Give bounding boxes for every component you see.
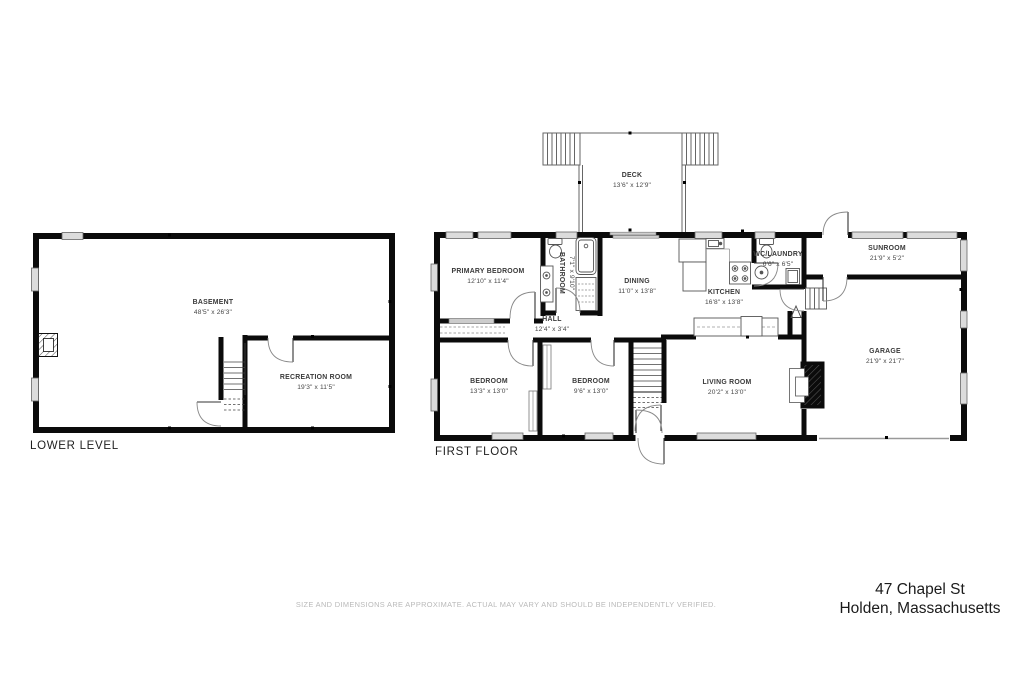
window-markers bbox=[32, 233, 84, 402]
room-label-garage: GARAGE 21'9" x 21'7" bbox=[866, 347, 904, 367]
room-label-bedroom-middle: BEDROOM 9'6" x 13'0" bbox=[572, 377, 610, 397]
dimension-ticks bbox=[168, 234, 392, 430]
property-address: 47 Chapel St Holden, Massachusetts bbox=[839, 580, 1000, 619]
room-label-living-room: LIVING ROOM 20'2" x 13'0" bbox=[702, 378, 751, 398]
room-label-deck: DECK 13'6" x 12'9" bbox=[613, 171, 651, 191]
slider-door bbox=[610, 232, 659, 238]
address-line1: 47 Chapel St bbox=[839, 580, 1000, 599]
floorplan-page: BASEMENT 48'5" x 26'3" RECREATION ROOM 1… bbox=[0, 0, 1024, 674]
fridge-pantry-icon bbox=[679, 239, 706, 291]
stove-icon bbox=[730, 262, 751, 284]
main-stairs bbox=[634, 348, 662, 408]
room-label-kitchen: KITCHEN 16'8" x 13'8" bbox=[705, 288, 743, 308]
disclaimer-text: SIZE AND DIMENSIONS ARE APPROXIMATE. ACT… bbox=[296, 600, 716, 609]
bathtub-icon bbox=[576, 238, 596, 275]
first-floor-plan bbox=[431, 132, 967, 465]
room-label-wc-laundry: WC/LAUNDRY 6'6" x 6'5" bbox=[753, 250, 802, 270]
floor-plan-drawing bbox=[0, 0, 1024, 674]
counter-edge bbox=[706, 249, 730, 262]
closets bbox=[440, 319, 551, 432]
first-floor-title: FIRST FLOOR bbox=[435, 446, 519, 458]
lower-level-title: LOWER LEVEL bbox=[30, 440, 119, 452]
room-label-recreation-room: RECREATION ROOM 19'3" x 11'5" bbox=[280, 373, 352, 393]
dishwasher-icon bbox=[741, 317, 762, 337]
room-label-sunroom: SUNROOM 21'9" x 5'2" bbox=[868, 244, 906, 264]
room-label-bathroom: BATHROOM 7'1" x 9'10" bbox=[556, 252, 576, 294]
address-line2: Holden, Massachusetts bbox=[839, 599, 1000, 618]
fireplace-icon bbox=[790, 362, 825, 409]
room-label-primary-bedroom: PRIMARY BEDROOM 12'10" x 11'4" bbox=[451, 267, 524, 287]
basement-stairs bbox=[224, 343, 245, 410]
lower-level-plan bbox=[32, 233, 393, 431]
deck-stair-railing bbox=[548, 133, 714, 165]
garage-door bbox=[817, 432, 950, 443]
kitchen-sink-icon bbox=[706, 239, 724, 249]
sunroom-door-opening bbox=[822, 232, 848, 239]
vanity-sink-icon bbox=[541, 266, 554, 302]
room-label-basement: BASEMENT 48'5" x 26'3" bbox=[193, 298, 234, 318]
entry-steps bbox=[791, 288, 827, 318]
peninsula-counter bbox=[694, 317, 778, 337]
room-label-dining: DINING 11'0" x 13'8" bbox=[618, 277, 656, 297]
room-label-bedroom-left: BEDROOM 13'3" x 13'0" bbox=[470, 377, 508, 397]
front-door-opening bbox=[636, 433, 665, 443]
room-label-hall: HALL 12'4" x 3'4" bbox=[535, 315, 569, 335]
chimney-icon bbox=[39, 334, 58, 357]
exterior-walls bbox=[36, 236, 392, 430]
washer-icon bbox=[786, 269, 800, 285]
